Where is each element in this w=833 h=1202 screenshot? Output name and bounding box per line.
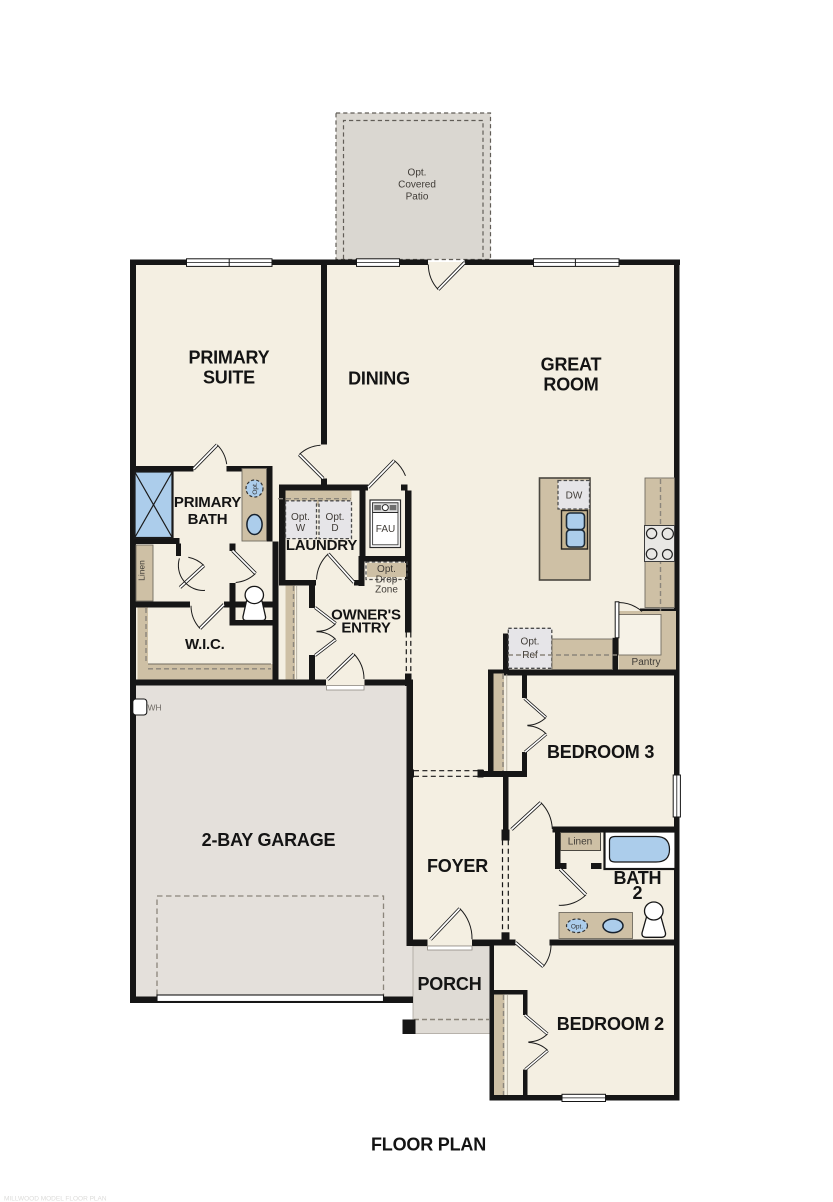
svg-text:W.I.C.: W.I.C.	[185, 636, 225, 653]
svg-text:PRIMARY: PRIMARY	[189, 348, 270, 368]
svg-text:Patio: Patio	[406, 192, 429, 203]
svg-text:ROOM: ROOM	[543, 375, 598, 395]
svg-text:GREAT: GREAT	[541, 355, 602, 375]
svg-text:Opt.: Opt.	[291, 512, 310, 523]
svg-text:FLOOR PLAN: FLOOR PLAN	[371, 1135, 486, 1155]
svg-text:BEDROOM 2: BEDROOM 2	[557, 1014, 664, 1034]
svg-text:FOYER: FOYER	[427, 856, 488, 876]
svg-text:BEDROOM 3: BEDROOM 3	[547, 742, 654, 762]
svg-text:Linen: Linen	[568, 837, 592, 848]
svg-text:Covered: Covered	[398, 180, 436, 191]
svg-text:Opt.: Opt.	[377, 564, 396, 575]
svg-text:BATH: BATH	[188, 511, 228, 528]
svg-text:SUITE: SUITE	[203, 368, 255, 388]
svg-text:Pantry: Pantry	[632, 657, 661, 668]
svg-text:Opt.: Opt.	[252, 482, 259, 494]
svg-text:DINING: DINING	[348, 369, 410, 389]
svg-text:D: D	[331, 523, 338, 534]
svg-text:Opt.: Opt.	[571, 924, 583, 931]
svg-text:ENTRY: ENTRY	[341, 620, 390, 637]
svg-text:WH: WH	[148, 703, 162, 713]
svg-text:Linen: Linen	[137, 560, 147, 581]
svg-text:FAU: FAU	[376, 524, 395, 535]
svg-text:2-BAY GARAGE: 2-BAY GARAGE	[202, 830, 336, 850]
svg-text:Opt.: Opt.	[408, 168, 427, 179]
svg-text:2: 2	[632, 883, 642, 903]
svg-text:W: W	[296, 523, 306, 534]
svg-text:LAUNDRY: LAUNDRY	[286, 537, 358, 554]
svg-text:MILLWOOD MODEL FLOOR PLAN: MILLWOOD MODEL FLOOR PLAN	[4, 1196, 107, 1202]
svg-text:PRIMARY: PRIMARY	[174, 494, 241, 511]
svg-text:Opt.: Opt.	[326, 512, 345, 523]
svg-text:PORCH: PORCH	[417, 974, 481, 994]
svg-text:DW: DW	[566, 491, 583, 502]
svg-text:Opt.: Opt.	[521, 637, 540, 648]
svg-text:Zone: Zone	[375, 585, 398, 596]
